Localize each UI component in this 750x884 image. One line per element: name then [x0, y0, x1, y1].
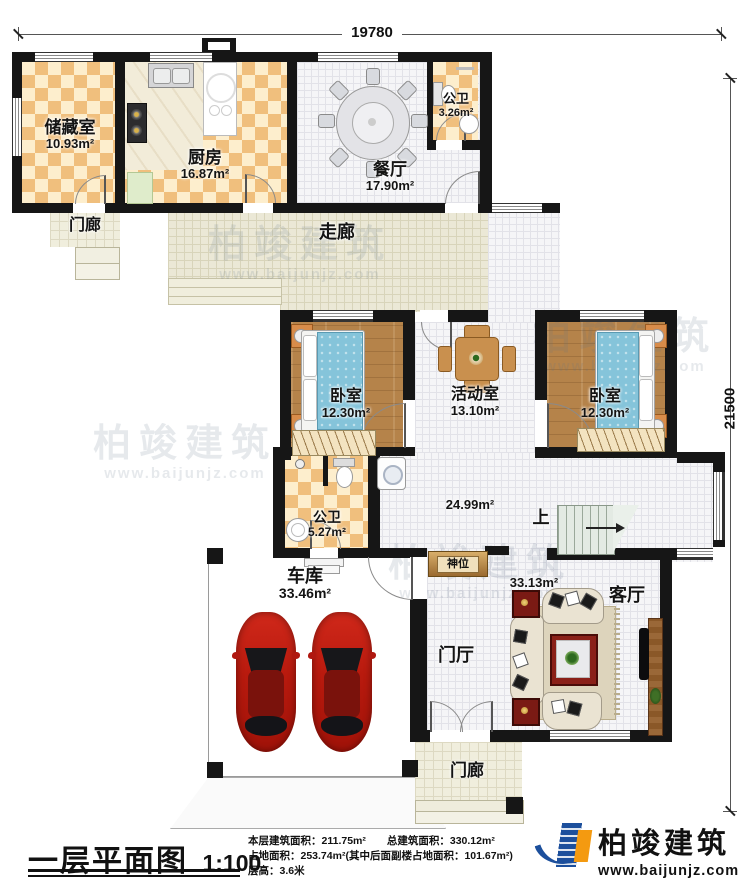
door-opening: [243, 203, 273, 213]
stats-line: 占地面积：253.74m²(其中后面副楼占地面积：101.67m²): [248, 849, 513, 864]
washing-machine-icon: [377, 457, 406, 490]
window: [150, 52, 212, 62]
wall: [448, 310, 488, 322]
room-label-porch-bottom: 门廊: [436, 761, 498, 780]
porch-pillar: [506, 797, 523, 814]
door-opening: [310, 548, 338, 558]
stats-line: 本层建筑面积：211.75m² 总建筑面积：330.12m²: [248, 834, 513, 849]
room-label-living: 客厅: [598, 585, 656, 605]
room-label-open-area: 24.99m²: [438, 498, 502, 513]
toilet-icon: [336, 466, 353, 488]
kitchen-island: [203, 62, 237, 136]
room-label-dining: 餐厅 17.90m²: [330, 160, 450, 194]
porch-pillar: [402, 760, 418, 777]
window: [313, 310, 373, 322]
stairs-up-label: 上: [530, 508, 552, 527]
window: [35, 52, 93, 62]
floor-plan: 柏竣建筑www.baijunjz.com 柏竣建筑www.baijunjz.co…: [0, 0, 750, 884]
company-logo-icon: [538, 818, 592, 874]
stove-icon: [127, 103, 147, 143]
wardrobe-icon: [292, 430, 376, 456]
room-label-kitchen: 厨房 16.87m²: [150, 148, 260, 182]
floor-drain-icon: [295, 459, 305, 469]
shrine-label: 神位: [437, 556, 479, 573]
pillow: [513, 629, 528, 644]
plan-title-row: 一层平面图 1:100: [28, 836, 261, 880]
chimney-vent-inner: [208, 42, 230, 50]
coffee-table: [550, 634, 598, 686]
activity-entry-strip: [488, 203, 560, 323]
logo-url: www.baijunjz.com: [598, 863, 748, 879]
plant-icon: [650, 688, 661, 704]
logo-brand: 柏竣建筑: [598, 820, 748, 862]
bed-icon: [595, 322, 665, 438]
dimension-value-right: 21500: [722, 381, 739, 437]
driveway: [170, 777, 446, 829]
open-area-floor: [368, 452, 713, 562]
wall: [485, 546, 509, 555]
door-opening: [436, 140, 462, 150]
title-underline: [28, 875, 240, 877]
car-icon: [312, 612, 372, 752]
stairs-arrow: [586, 527, 616, 529]
door-opening: [73, 203, 105, 213]
corridor-steps: [168, 278, 282, 305]
room-label-foyer: 门厅: [428, 645, 484, 665]
room-label-bath-top: 公卫 3.26m²: [428, 92, 484, 119]
wall: [480, 52, 492, 213]
window: [318, 52, 398, 62]
corridor-floor-lower: [280, 278, 488, 312]
wall: [273, 447, 285, 558]
side-table: [512, 698, 540, 726]
company-logo-text: 柏竣建筑 www.baijunjz.com: [598, 820, 748, 879]
dimension-line-right: [730, 78, 731, 812]
tv-icon: [639, 628, 649, 680]
room-label-bedroom-left: 卧室 12.30m²: [266, 388, 426, 420]
door-opening: [445, 203, 478, 213]
door-opening: [420, 310, 448, 322]
wall: [542, 203, 560, 213]
window: [677, 548, 713, 560]
car-icon: [236, 612, 296, 752]
plan-stats: 本层建筑面积：211.75m² 总建筑面积：330.12m² 占地面积：253.…: [248, 834, 513, 879]
wall: [415, 730, 430, 742]
bed-icon: [291, 322, 365, 438]
title-underline: [28, 869, 240, 872]
room-label-storage: 储藏室 10.93m²: [20, 118, 120, 152]
stairs: [557, 505, 615, 555]
wardrobe-icon: [577, 428, 665, 452]
window: [580, 310, 644, 322]
stats-line: 层高：3.6米: [248, 864, 513, 879]
towel-bar-icon: [456, 67, 474, 70]
porch-top-step2: [75, 263, 120, 280]
room-label-bedroom-right: 卧室 12.30m²: [525, 388, 685, 420]
room-label-corridor: 走廊: [302, 222, 372, 242]
room-label-bath-mid: 公卫 5.27m²: [294, 510, 360, 539]
wall: [287, 62, 297, 203]
stairs-arrowhead: [616, 523, 625, 533]
living-area-label: 33.13m²: [500, 576, 568, 591]
activity-table-set: [438, 325, 514, 391]
room-label-garage: 车库 33.46m²: [250, 566, 360, 602]
side-table: [512, 590, 540, 618]
garage-pillar: [207, 762, 223, 778]
window: [713, 472, 725, 540]
wall: [323, 456, 328, 486]
room-label-porch-top: 门廊: [56, 217, 114, 235]
kitchen-sink: [148, 63, 194, 88]
tv-cabinet: [648, 618, 663, 736]
window: [492, 203, 542, 213]
garage-pillar: [207, 548, 223, 564]
pillow: [551, 699, 566, 714]
rug-fringe: [614, 608, 620, 716]
window: [550, 730, 630, 742]
wall: [280, 310, 291, 460]
room-label-activity: 活动室 13.10m²: [405, 386, 545, 418]
page-title: 一层平面图: [28, 845, 188, 878]
shrine-table: 神位: [428, 551, 488, 577]
wall: [490, 730, 550, 742]
dimension-value-top: 19780: [342, 24, 402, 41]
